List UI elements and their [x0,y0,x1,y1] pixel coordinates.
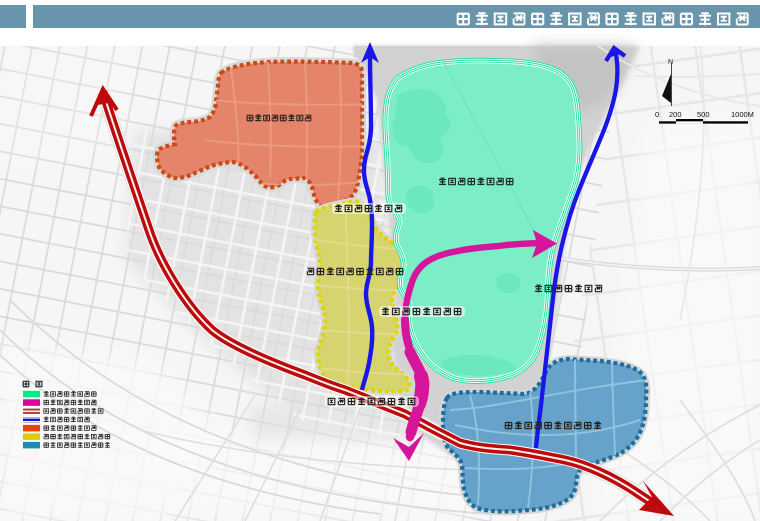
svg-text:200: 200 [669,110,682,119]
svg-text:0: 0 [655,110,659,119]
svg-text:1000M: 1000M [731,110,754,119]
svg-text:500: 500 [697,110,710,119]
svg-text:N: N [668,59,673,66]
